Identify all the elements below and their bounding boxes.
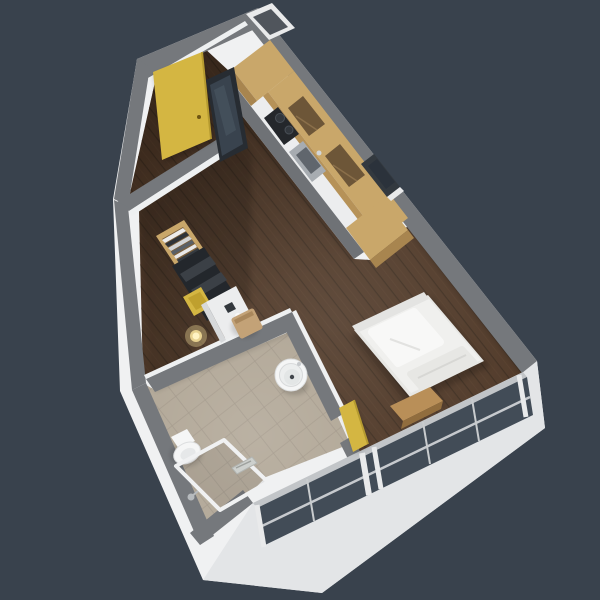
entry	[153, 52, 248, 163]
burner-2	[285, 126, 293, 134]
burner-1	[276, 114, 285, 123]
floor-lamp	[185, 325, 207, 347]
floorplan-3d-viewport[interactable]: Axonometric 3D render of a small studio …	[0, 0, 600, 600]
basin-drain	[290, 375, 294, 379]
entry-door-handle	[197, 115, 201, 119]
basin-tap	[297, 362, 301, 366]
lamp-bulb	[193, 333, 200, 340]
faucet	[317, 151, 322, 156]
